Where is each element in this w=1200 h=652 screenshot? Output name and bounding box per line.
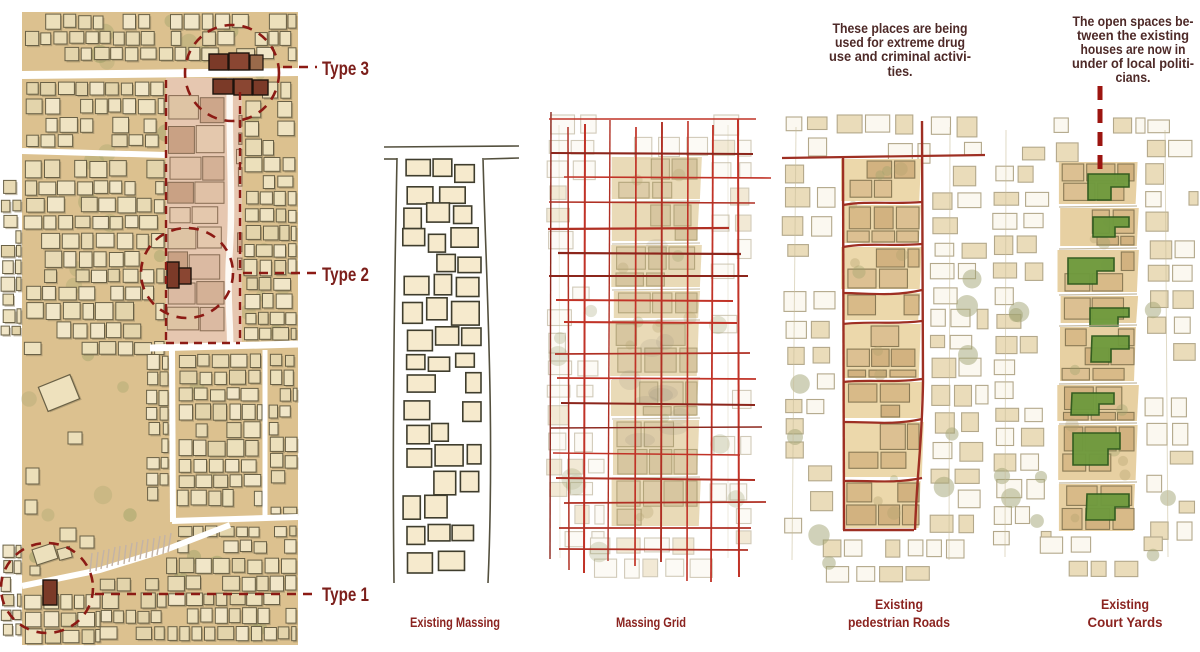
svg-text:Existing: Existing [1101, 596, 1149, 612]
svg-text:Existing: Existing [875, 596, 923, 612]
svg-text:use and criminal activi-: use and criminal activi- [829, 48, 971, 64]
svg-text:ties.: ties. [888, 63, 913, 79]
svg-text:Type 3: Type 3 [322, 59, 369, 80]
svg-text:Court Yards: Court Yards [1088, 614, 1163, 630]
svg-text:Type 1: Type 1 [322, 585, 369, 606]
svg-text:Type 2: Type 2 [322, 265, 369, 286]
svg-text:Massing Grid: Massing Grid [616, 615, 686, 630]
svg-text:cians.: cians. [1116, 69, 1151, 85]
svg-text:Existing Massing: Existing Massing [410, 615, 500, 630]
svg-text:pedestrian Roads: pedestrian Roads [848, 614, 950, 630]
